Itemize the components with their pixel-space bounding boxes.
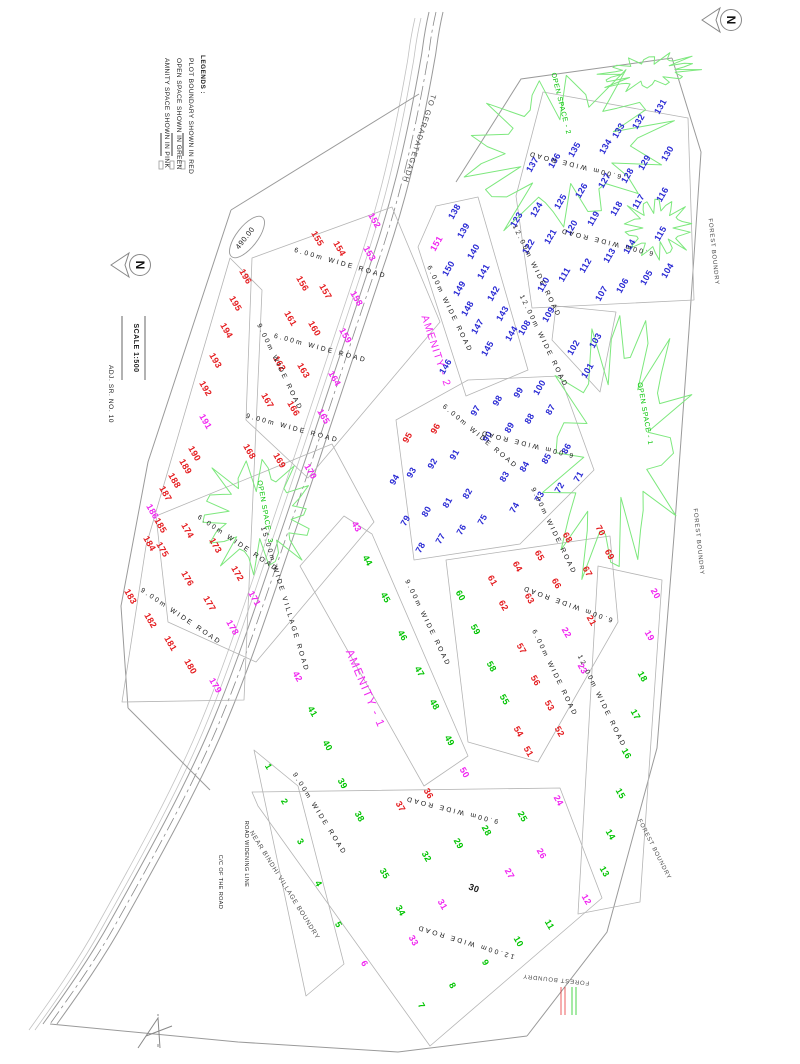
plot-number: 192	[197, 379, 214, 398]
annotation-label: FOREST BOUNDRY	[636, 818, 672, 880]
plot-number: 65	[533, 548, 547, 562]
annotation-label: C/C OF THE ROAD	[217, 855, 223, 910]
plot-number: 93	[404, 465, 418, 479]
plot-number: 103	[587, 331, 604, 350]
plot-number: 172	[229, 564, 246, 583]
plot-number: 30	[467, 882, 480, 895]
plot-number: 36	[422, 786, 436, 800]
plot-number: 1	[263, 762, 274, 772]
plot-number: 170	[302, 462, 319, 481]
plot-number: 169	[271, 451, 288, 470]
plot-number: 62	[497, 598, 511, 612]
plot-number: 69	[603, 547, 617, 561]
plot-number: 75	[475, 512, 489, 526]
plot-number: 44	[361, 553, 375, 567]
plot-number: 19	[643, 628, 657, 642]
road-width-label: 12.00m WIDE ROAD	[416, 923, 516, 960]
plot-number: 189	[177, 457, 194, 476]
plot-number: 147	[469, 317, 486, 336]
plot-number: 6	[359, 959, 370, 969]
annotation-label: FOREST BOUNDRY	[707, 218, 720, 285]
plot-number: 31	[436, 897, 450, 911]
plot-number: 17	[629, 707, 643, 721]
plot-number: 13	[598, 864, 612, 878]
annotation-label: NEAR BINDHI VILLAGE BOUNDRY	[248, 830, 321, 941]
plot-number: 57	[515, 641, 529, 655]
legend-swatch-box	[170, 161, 174, 169]
north-arrow-pointer	[111, 253, 129, 277]
plot-number: 56	[529, 673, 543, 687]
plot-number: 153	[361, 244, 378, 263]
plot-number: 42	[291, 669, 305, 683]
plot-number: 167	[259, 391, 276, 410]
plot-number: 184	[141, 534, 158, 553]
plot-number: 132	[630, 112, 647, 131]
plot-number: 106	[614, 276, 631, 295]
plot-number: 2	[279, 797, 290, 807]
plot-number: 195	[227, 294, 244, 313]
plot-number: 156	[294, 274, 311, 293]
plot-number: 4	[313, 879, 324, 889]
plot-number: 150	[440, 259, 457, 278]
plot-number: 38	[353, 809, 367, 823]
annotation-label: FOREST BOUNDRY	[692, 508, 705, 575]
plot-number: 18	[636, 669, 650, 683]
plot-number: 43	[350, 519, 364, 533]
plot-number: 54	[512, 724, 526, 738]
plot-number: 40	[321, 738, 335, 752]
legend-item-amenity-space: AMNITY SPACE SHOWN IN PINK	[163, 58, 170, 168]
plot-number: 87	[543, 402, 557, 416]
plot-number: 164	[326, 369, 343, 388]
plot-number: 183	[122, 587, 139, 606]
site-plan-canvas: NN12345678910111213141516171819202122232…	[0, 0, 800, 1064]
layout-plan-drawing: NN12345678910111213141516171819202122232…	[0, 0, 800, 1064]
plot-number: 15	[614, 786, 628, 800]
plot-number: 49	[443, 733, 457, 747]
annotation-label: AMENITY - 1	[343, 648, 387, 730]
plot-number: 50	[458, 765, 472, 779]
north-arrow: N	[111, 253, 151, 277]
plot-number: 141	[475, 262, 492, 281]
plot-number: 29	[452, 836, 466, 850]
plot-number: 53	[543, 698, 557, 712]
legend-item-open-space: OPEN SPACE SHOWN IN GREEN	[175, 58, 182, 170]
plot-number: 11	[543, 918, 557, 932]
plot-number: 179	[207, 676, 224, 695]
north-arrow: N	[702, 8, 742, 32]
plot-number: 84	[517, 459, 531, 473]
annotation-label: SCALE 1:500	[132, 323, 139, 372]
plot-number: 159	[337, 326, 354, 345]
plot-number: 95	[400, 430, 414, 444]
plot-number: 55	[498, 692, 512, 706]
open-space-outline	[597, 53, 702, 92]
annotation-label: ROAD WIDENING LINE	[243, 821, 249, 887]
legend-heading: LEGENDS :	[199, 55, 206, 94]
plot-number: 142	[485, 284, 502, 303]
plot-number: 9	[480, 958, 491, 968]
annotation-label: OPEN SPACE - 2	[549, 72, 571, 135]
plot-number: 151	[428, 234, 445, 253]
plot-number: 59	[469, 622, 483, 636]
plot-number: 157	[317, 282, 334, 301]
plot-number: 124	[528, 200, 545, 219]
plot-number: 41	[306, 704, 320, 718]
legend-item-plot-boundary: PLOT BOUNDARY SHOWN IN RED	[187, 58, 194, 174]
plot-number: 174	[179, 521, 196, 540]
plot-number: 76	[454, 522, 468, 536]
north-label: N	[133, 261, 147, 270]
plot-number: 115	[652, 224, 668, 242]
plot-number: 112	[577, 256, 593, 274]
plot-number: 177	[201, 594, 218, 613]
plot-number: 24	[552, 793, 566, 807]
plot-number: 12	[580, 892, 594, 906]
plot-number: 181	[162, 634, 179, 653]
plot-number: 10	[512, 934, 526, 948]
plot-number: 45	[379, 590, 393, 604]
plot-block-outline	[122, 258, 262, 702]
plot-number: 26	[535, 846, 549, 860]
plot-number: 161	[282, 309, 299, 328]
plot-number: 77	[433, 531, 447, 545]
road-width-label: 9.00m WIDE ROAD	[404, 794, 499, 824]
plot-number: 52	[553, 724, 567, 738]
plot-number: 60	[454, 588, 468, 602]
corner-marker-symbol	[138, 1014, 172, 1048]
plot-number: 105	[638, 268, 655, 287]
plot-number: 149	[451, 279, 468, 298]
plot-number: 113	[601, 246, 617, 264]
plot-number: 119	[585, 209, 601, 227]
plot-number: 94	[387, 472, 401, 486]
plot-number: 78	[413, 540, 427, 554]
road-width-label: 12.00m WIDE ROAD	[576, 654, 627, 749]
plot-number: 100	[531, 378, 548, 397]
annotation-label: AMENITY - 2	[419, 314, 454, 389]
plot-number: 134	[597, 137, 614, 156]
annotation-label: FOREST BOUNDRY	[522, 973, 589, 986]
north-arrow-pointer	[702, 8, 720, 32]
plot-number: 148	[459, 299, 476, 318]
plot-number: 130	[659, 144, 676, 163]
site-boundary	[50, 1024, 527, 1052]
road-width-label: 6.00m WIDE ROAD	[521, 584, 614, 623]
plot-number: 91	[447, 447, 461, 461]
plot-number: 182	[142, 611, 159, 630]
plot-number: 58	[485, 659, 499, 673]
site-boundary	[121, 210, 231, 708]
plot-number: 14	[604, 827, 618, 841]
plot-number: 51	[522, 744, 536, 758]
plot-number: 64	[511, 559, 525, 573]
road-width-label: 15.00m WIDE VILLAGE ROAD	[259, 526, 310, 673]
plot-number: 125	[552, 192, 569, 211]
plot-number: 66	[550, 576, 564, 590]
road-width-label: 12.00m WIDE ROAD	[518, 294, 569, 389]
plot-number: 46	[396, 628, 410, 642]
plot-number: 35	[378, 866, 392, 880]
annotation-label: ADJ. SR. NO. 10	[107, 365, 114, 423]
plot-number: 88	[522, 411, 536, 425]
plot-number: 191	[197, 412, 214, 431]
plot-number: 194	[218, 321, 235, 340]
plot-number: 47	[413, 664, 427, 678]
plot-number: 82	[460, 486, 474, 500]
plot-number: 27	[503, 866, 517, 880]
annotation-label: 490.00	[233, 225, 256, 251]
plot-number: 7	[416, 1001, 427, 1011]
plot-number: 111	[556, 266, 572, 284]
plot-number: 25	[516, 809, 530, 823]
plot-number: 96	[428, 421, 442, 435]
plot-number: 163	[295, 361, 312, 380]
plot-number: 175	[154, 540, 171, 559]
plot-number: 180	[182, 657, 199, 676]
plot-number: 145	[479, 339, 496, 358]
plot-number: 118	[608, 199, 624, 217]
plot-number: 176	[179, 569, 196, 588]
plot-number: 138	[446, 202, 463, 221]
plot-number: 89	[502, 420, 516, 434]
annotation-label: OPEN SPACE - 1	[636, 382, 654, 446]
plot-number: 34	[394, 903, 408, 917]
plot-number: 131	[652, 97, 669, 116]
plot-number: 22	[560, 625, 574, 639]
plot-number: 16	[620, 746, 634, 760]
plot-number: 83	[497, 469, 511, 483]
plot-number: 102	[565, 338, 582, 357]
plot-number: 152	[366, 211, 383, 230]
plot-number: 39	[336, 776, 350, 790]
plot-number: 80	[419, 504, 433, 518]
plot-number: 48	[428, 697, 442, 711]
plot-number: 121	[542, 227, 559, 246]
plot-number: 101	[579, 361, 596, 380]
plot-number: 173	[207, 536, 224, 555]
plot-number: 92	[425, 456, 439, 470]
plot-number: 28	[480, 823, 494, 837]
plot-number: 154	[331, 239, 348, 258]
plot-number: 32	[420, 849, 434, 863]
road-widening-line	[35, 18, 421, 1030]
plot-number: 98	[490, 393, 504, 407]
plot-number: 143	[494, 304, 511, 323]
plot-number: 79	[398, 513, 412, 527]
annotation-label: TO GERADATEGADH	[401, 93, 438, 184]
plot-number: 116	[654, 185, 670, 203]
plot-number: 140	[465, 242, 482, 261]
plot-number: 99	[511, 385, 525, 399]
plot-number: 97	[468, 403, 482, 417]
plot-number: 3	[295, 837, 306, 847]
plot-number: 129	[636, 153, 653, 172]
site-boundary	[231, 94, 419, 210]
plot-number: 33	[407, 933, 421, 947]
plot-number: 107	[593, 284, 610, 303]
plot-number: 139	[455, 221, 472, 240]
site-boundary	[128, 708, 210, 790]
plot-number: 117	[630, 192, 646, 210]
plot-number: 61	[486, 573, 500, 587]
village-road-edge	[43, 12, 429, 1024]
plot-number: 104	[659, 261, 676, 280]
plot-number: 81	[440, 495, 454, 509]
plot-number: 126	[573, 181, 590, 200]
plot-number: 74	[507, 500, 521, 514]
plot-number: 160	[306, 319, 323, 338]
north-label: N	[724, 16, 738, 25]
plot-number: 193	[207, 351, 224, 370]
plot-number: 71	[571, 469, 585, 483]
plot-number: 8	[447, 981, 458, 991]
plot-number: 135	[566, 140, 583, 159]
